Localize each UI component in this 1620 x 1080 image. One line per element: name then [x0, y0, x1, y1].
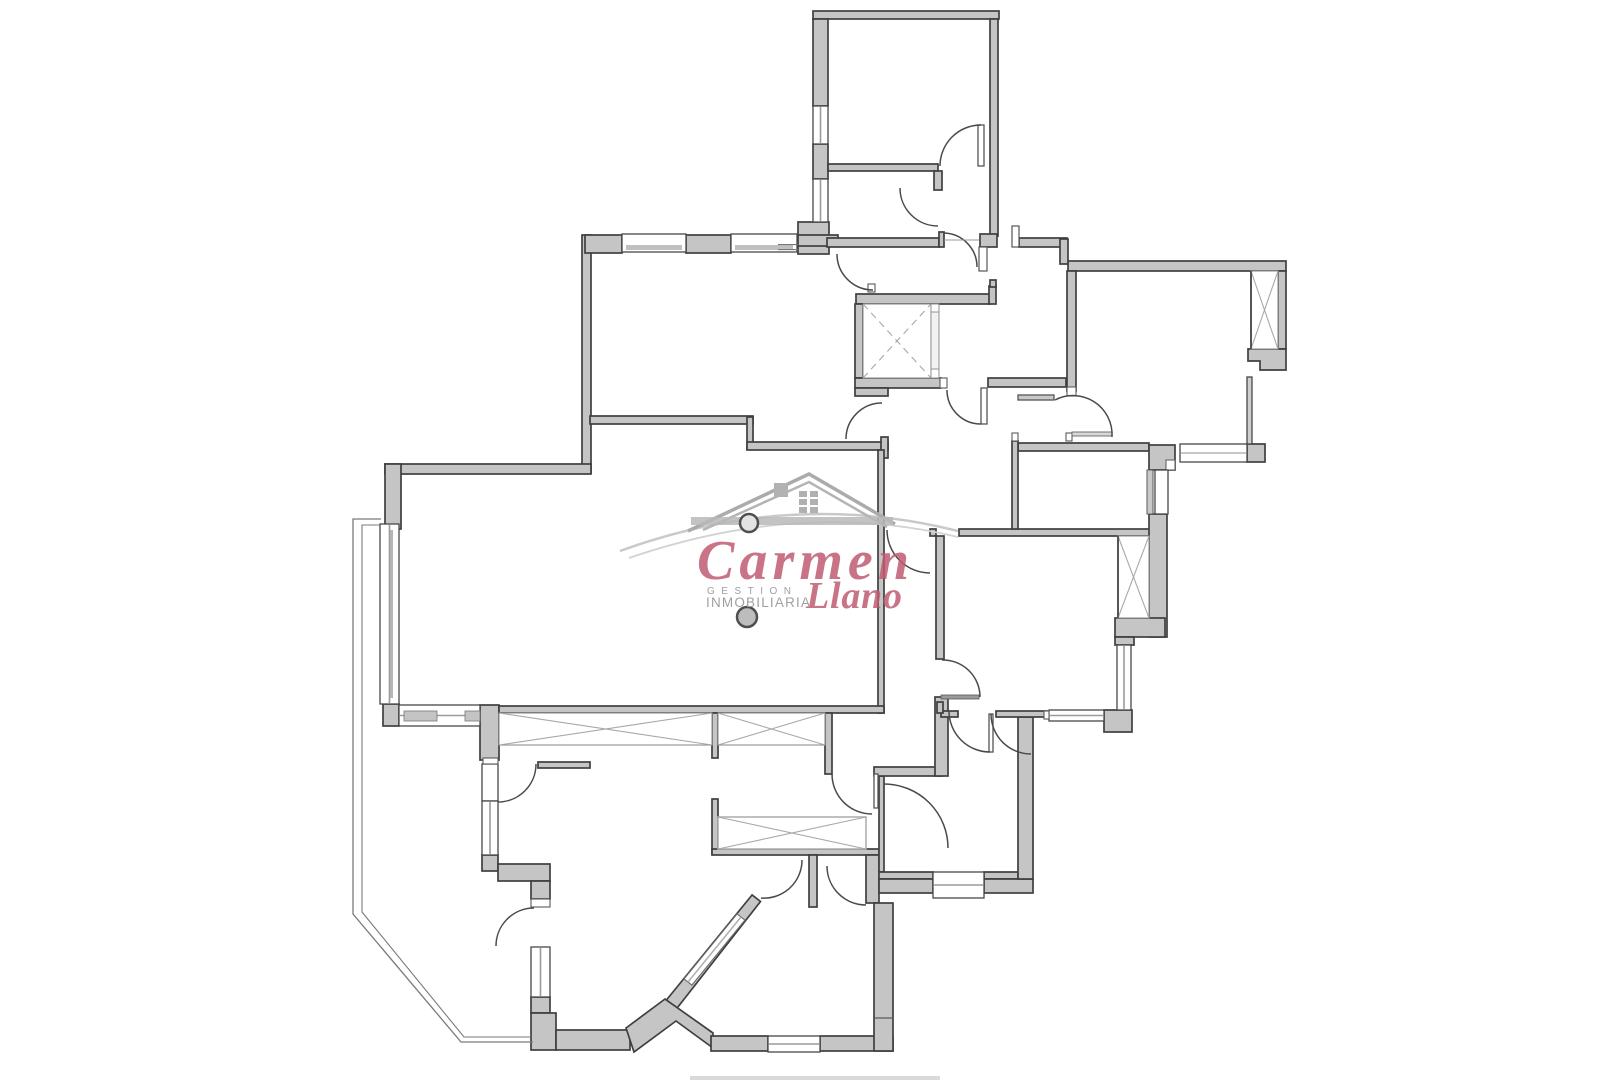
svg-text:INMOBILIARIA: INMOBILIARIA	[706, 595, 811, 610]
svg-text:Llano: Llano	[805, 575, 902, 617]
